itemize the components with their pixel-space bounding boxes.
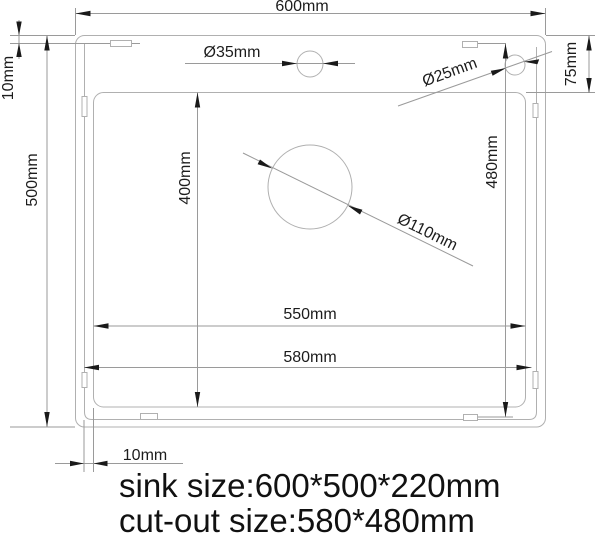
arrow: [195, 392, 200, 407]
arrow: [70, 461, 84, 466]
arrow: [491, 68, 506, 76]
drawing-geometry: [0, 0, 600, 537]
drain-hole: [268, 145, 352, 229]
dim-600mm-label: 600mm: [275, 0, 328, 15]
arrow: [531, 11, 546, 16]
dim-35mm-label: Ø35mm: [204, 45, 261, 61]
arrow: [84, 365, 99, 370]
arrow: [195, 93, 200, 108]
arrow: [524, 59, 539, 64]
arrow: [503, 44, 508, 59]
arrow: [586, 36, 591, 51]
arrow: [258, 160, 273, 169]
mounting-clip-top-right: [463, 42, 478, 48]
dim-10mm-bottom-label: 10mm: [123, 448, 167, 464]
dim-480mm-label: 480mm: [485, 135, 501, 188]
arrow: [76, 11, 91, 16]
mounting-clip-bottom-right: [464, 415, 478, 421]
mounting-clip-top-left: [111, 41, 132, 47]
dim-500mm-label: 500mm: [25, 153, 41, 206]
arrow: [511, 323, 526, 328]
dim-75mm-label: 75mm: [564, 42, 580, 86]
arrow: [282, 61, 297, 66]
dim-550mm-label: 550mm: [283, 307, 336, 323]
mounting-clip-right-bottom: [533, 372, 538, 389]
mounting-clip-left-bottom: [82, 373, 87, 388]
arrow: [94, 323, 109, 328]
caption-sink-size: sink size:600*500*220mm: [119, 468, 501, 503]
arrow: [348, 206, 363, 215]
arrow: [503, 402, 508, 417]
arrow: [44, 412, 49, 427]
sink-technical-drawing: 600mm 10mm 500mm Ø35mm Ø25mm 75mm 400mm …: [0, 0, 600, 537]
mounting-clip-bottom-left: [141, 414, 158, 420]
arrow: [517, 365, 532, 370]
arrow: [94, 461, 108, 466]
arrow: [16, 22, 21, 36]
dim-10mm-top-label: 10mm: [1, 56, 17, 100]
arrow: [323, 61, 338, 66]
mounting-clip-left-top: [82, 97, 87, 117]
size-caption: sink size:600*500*220mm cut-out size:580…: [119, 468, 501, 537]
mounting-clip-right-top: [533, 104, 538, 118]
arrow: [586, 78, 591, 93]
dim-580mm-label: 580mm: [283, 350, 336, 366]
caption-cutout-size: cut-out size:580*480mm: [119, 503, 501, 537]
sink-outer-outline: [76, 36, 546, 428]
dim-400mm-label: 400mm: [178, 151, 194, 204]
arrow: [16, 43, 21, 57]
